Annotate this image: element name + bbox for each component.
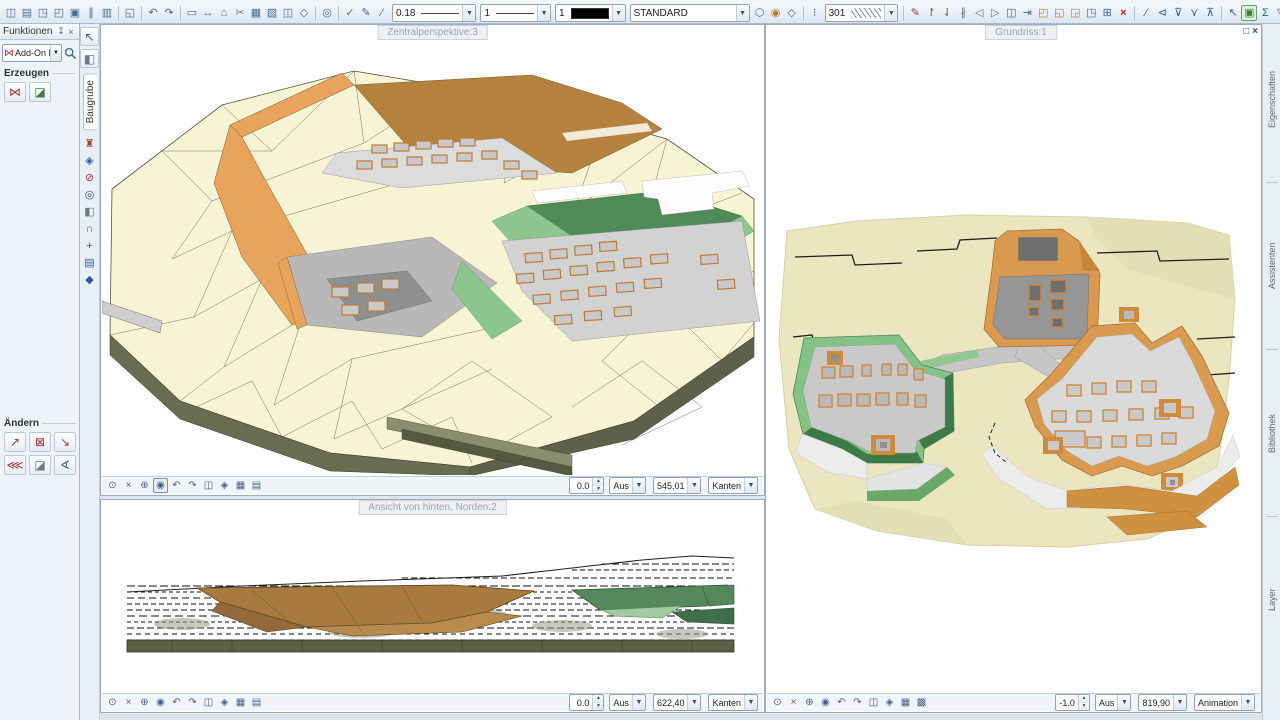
- orbit-view-icon[interactable]: ◉: [153, 695, 168, 710]
- close-window-icon[interactable]: ×: [1252, 26, 1258, 37]
- modify-point-icon[interactable]: ↘: [54, 432, 76, 452]
- addon-module-dropdown[interactable]: ⋈ Add-On Modul ▼: [2, 44, 62, 62]
- fit-view-icon[interactable]: ×: [121, 695, 136, 710]
- select-area-icon[interactable]: ▣: [1241, 5, 1257, 21]
- copy-icon[interactable]: ◫: [1003, 5, 1019, 21]
- filter-back-icon[interactable]: ⋎: [1186, 5, 1202, 21]
- project-pilot-icon[interactable]: ▥: [99, 5, 115, 21]
- perspective-icon[interactable]: ◈: [217, 695, 232, 710]
- library-books-icon[interactable]: ◧: [80, 49, 99, 68]
- functions-palette: Funktionen ↧ × ⋈ Add-On Modul ▼ Erzeugen…: [0, 24, 80, 720]
- viewport-title[interactable]: Ansicht von hinten, Norden:2: [358, 500, 506, 515]
- select-sum-icon[interactable]: Σ: [1257, 5, 1273, 21]
- toolbar-separator: [338, 6, 339, 21]
- tab-baugrube[interactable]: Baugrube: [83, 73, 97, 130]
- inspect-module-icon[interactable]: ◎: [81, 187, 98, 203]
- copy-image-icon[interactable]: ▦: [248, 5, 264, 21]
- perspective-icon[interactable]: ◈: [217, 478, 232, 493]
- select-arrow-icon[interactable]: ↖: [1225, 5, 1241, 21]
- chevron-down-icon[interactable]: ▼: [1117, 695, 1130, 710]
- track-view-icon[interactable]: ⊙: [105, 695, 120, 710]
- copy-mirror-icon[interactable]: ◱: [1051, 5, 1067, 21]
- projection-dropdown[interactable]: Aus▼: [1095, 694, 1132, 711]
- screen-layout-icon[interactable]: ◱: [122, 5, 138, 21]
- furniture-module-icon[interactable]: ♜: [81, 136, 98, 152]
- projection-dropdown[interactable]: Aus▼: [609, 694, 646, 711]
- filter-assistant-icon[interactable]: ⊲: [1154, 5, 1170, 21]
- cut-icon[interactable]: ✂: [232, 5, 248, 21]
- sphere-module-icon[interactable]: ◈: [81, 153, 98, 169]
- dgm-delete-tool-icon[interactable]: ⋈: [4, 82, 26, 102]
- orbit-view-icon[interactable]: ◉: [153, 478, 168, 493]
- toolbar-separator: [1221, 6, 1222, 21]
- viewport-nav-bar: ⊙×⊕◉↶↷◫◈▦▤ 0.0 ▲▼ Aus▼ 622,40▼ Kanten▼: [102, 693, 763, 711]
- view-list-icon[interactable]: ▤: [249, 478, 264, 493]
- view-undo-icon[interactable]: ↶: [834, 695, 849, 710]
- tab-bibliothek[interactable]: Bibliothek: [1267, 358, 1277, 508]
- chevron-down-icon[interactable]: ▼: [744, 478, 757, 493]
- surface-style-icon[interactable]: ⬡: [752, 5, 768, 21]
- scale-dropdown[interactable]: 545,01▼: [653, 477, 702, 494]
- view-redo-icon[interactable]: ↷: [185, 695, 200, 710]
- toolbar-separator: [315, 6, 316, 21]
- view-angle-spinner[interactable]: -1.0 ▲▼: [1055, 694, 1090, 711]
- chevron-down-icon[interactable]: ▼: [884, 5, 897, 21]
- line-type-preview: [496, 13, 534, 14]
- chevron-down-icon[interactable]: ▼: [632, 478, 645, 493]
- module-icon: ⋈: [3, 48, 15, 59]
- save-icon[interactable]: ▣: [67, 5, 83, 21]
- paste-image-icon[interactable]: ▧: [264, 5, 280, 21]
- find-icon[interactable]: ◎: [319, 5, 335, 21]
- view-angle-spinner[interactable]: 0.0 ▲▼: [569, 477, 604, 494]
- format-stroke-icon[interactable]: ∕: [374, 5, 390, 21]
- scale-dropdown[interactable]: 819,90▼: [1138, 694, 1187, 711]
- format-check-icon[interactable]: ✓: [342, 5, 358, 21]
- filter-up-icon[interactable]: ⊼: [1202, 5, 1218, 21]
- hatch-link-icon[interactable]: ⁝: [807, 5, 823, 21]
- resize-icon[interactable]: ⊞: [1099, 5, 1115, 21]
- toolbar-separator: [1134, 6, 1135, 21]
- pin-strip-icon[interactable]: ↖: [80, 27, 99, 46]
- view-undo-icon[interactable]: ↶: [169, 695, 184, 710]
- viewport-perspective: Zentralperspektive:3: [100, 24, 765, 496]
- format-pen-icon[interactable]: ✎: [358, 5, 374, 21]
- print-view-icon[interactable]: ◫: [201, 478, 216, 493]
- elevation-canvas[interactable]: [102, 514, 763, 692]
- orbit-view-icon[interactable]: ◉: [818, 695, 833, 710]
- track-view-icon[interactable]: ⊙: [105, 478, 120, 493]
- modify-line-icon[interactable]: ↗: [4, 432, 26, 452]
- chevron-down-icon[interactable]: ▼: [612, 5, 625, 21]
- chevron-down-icon[interactable]: ▼: [50, 45, 61, 61]
- undo-icon[interactable]: ↶: [145, 5, 161, 21]
- layer-dropdown[interactable]: STANDARD ▼: [630, 4, 750, 22]
- stop-module-icon[interactable]: ⊘: [81, 170, 98, 186]
- fit-view-icon[interactable]: ×: [786, 695, 801, 710]
- viewport-title[interactable]: Zentralperspektive:3: [377, 25, 488, 40]
- redo-icon[interactable]: ↷: [161, 5, 177, 21]
- close-palette-icon[interactable]: ×: [66, 27, 76, 37]
- palette-title-bar: Funktionen ↧ ×: [0, 24, 79, 40]
- toolbar-separator: [180, 6, 181, 21]
- section-create-header: Erzeugen: [4, 68, 75, 79]
- stretch-icon[interactable]: ◲: [1067, 5, 1083, 21]
- view-list-icon[interactable]: ▤: [249, 695, 264, 710]
- strip-divider: [1266, 516, 1278, 517]
- diamond-module-icon[interactable]: ◆: [81, 272, 98, 288]
- hatch-preview: [851, 8, 881, 18]
- spin-down-icon[interactable]: ▼: [1079, 703, 1089, 711]
- pen-color-dropdown[interactable]: 1 ▼: [555, 4, 626, 22]
- zoom-in-icon[interactable]: ⊕: [137, 695, 152, 710]
- dgm-mesh-tool-icon[interactable]: ◪: [29, 82, 51, 102]
- 3d-body-icon[interactable]: ◇: [296, 5, 312, 21]
- print-view-icon[interactable]: ◫: [201, 695, 216, 710]
- axis-module-icon[interactable]: +: [81, 238, 98, 254]
- fit-view-icon[interactable]: ×: [121, 478, 136, 493]
- search-icon[interactable]: [64, 47, 77, 60]
- tab-layer[interactable]: Layer: [1267, 525, 1277, 675]
- texture-icon[interactable]: ◇: [784, 5, 800, 21]
- mesh-settings-icon[interactable]: ∢: [54, 455, 76, 475]
- toolbar-separator: [803, 6, 804, 21]
- copy-view-icon[interactable]: ▦: [233, 695, 248, 710]
- allplan-cad-window: { "toolbar": { "pen_width": "0.18", "lin…: [0, 0, 1280, 720]
- clip-module-icon[interactable]: ◧: [81, 204, 98, 220]
- display-mode-dropdown[interactable]: Animation▼: [1194, 694, 1255, 711]
- merge-mesh-icon[interactable]: ⋘: [4, 455, 26, 475]
- chevron-down-icon[interactable]: ▼: [632, 695, 645, 710]
- hook-tool-icon[interactable]: ⇃: [939, 5, 955, 21]
- chevron-down-icon[interactable]: ▼: [687, 695, 700, 710]
- display-mode-dropdown[interactable]: Kanten▼: [708, 477, 758, 494]
- track-view-icon[interactable]: ⊙: [770, 695, 785, 710]
- roof-tool-icon[interactable]: ⌂: [216, 5, 232, 21]
- zoom-in-icon[interactable]: ⊕: [137, 478, 152, 493]
- section-modify-header: Ändern: [4, 418, 76, 429]
- spin-up-icon[interactable]: ▲: [1079, 695, 1089, 703]
- filter-pen-icon[interactable]: ∕: [1138, 5, 1154, 21]
- copy-view-icon[interactable]: ▦: [233, 478, 248, 493]
- palette-title: Funktionen: [3, 26, 52, 37]
- select-filter-icon[interactable]: ▽: [1273, 5, 1280, 21]
- display-mode-dropdown[interactable]: Kanten▼: [708, 694, 758, 711]
- toolbar-separator: [118, 6, 119, 21]
- delete-mesh-icon[interactable]: ⊠: [29, 432, 51, 452]
- viewport-nav-bar: ⊙×⊕◉↶↷◫◈▦▤ 0.0 ▲▼ Aus▼ 545,01▼ Kanten▼: [102, 476, 763, 494]
- viewport-nav-bar: ⊙×⊕◉↶↷◫◈▦▩ -1.0 ▲▼ Aus▼ 819,90▼ Animatio…: [767, 693, 1260, 711]
- spin-up-icon[interactable]: ▲: [593, 478, 603, 486]
- chevron-down-icon[interactable]: ▼: [537, 5, 550, 21]
- hatch-style-dropdown[interactable]: 301 ▼: [825, 4, 899, 22]
- smooth-mesh-icon[interactable]: ◪: [29, 455, 51, 475]
- parallel-icon[interactable]: ∦: [955, 5, 971, 21]
- view-angle-spinner[interactable]: 0.0 ▲▼: [569, 694, 604, 711]
- viewport-title[interactable]: Grundriss:1: [985, 25, 1057, 40]
- view-redo-icon[interactable]: ↷: [185, 478, 200, 493]
- import-export-icon[interactable]: ∥: [83, 5, 99, 21]
- pen-width-preview: [421, 13, 459, 14]
- grid-view-icon[interactable]: ▩: [914, 695, 929, 710]
- ruler-icon[interactable]: ▭: [184, 5, 200, 21]
- tab-assistenten[interactable]: Assistenten: [1267, 191, 1277, 341]
- pin-palette-icon[interactable]: ↧: [56, 26, 66, 37]
- new-document-icon[interactable]: ◫: [3, 5, 19, 21]
- toolbar-separator: [141, 6, 142, 21]
- color-swatch: [571, 8, 609, 19]
- print-view-icon[interactable]: ◫: [866, 695, 881, 710]
- chevron-down-icon[interactable]: ▼: [744, 695, 757, 710]
- mirror-left-icon[interactable]: ◁: [971, 5, 987, 21]
- paste-special-icon[interactable]: ◫: [280, 5, 296, 21]
- mirror-right-icon[interactable]: ▷: [987, 5, 1003, 21]
- align-icon[interactable]: ◳: [1083, 5, 1099, 21]
- maximize-window-icon[interactable]: □: [1243, 26, 1249, 37]
- viewport-elevation: Ansicht von hinten, Norden:2: [100, 499, 765, 713]
- scale-dropdown[interactable]: 622,40▼: [653, 694, 702, 711]
- chevron-down-icon[interactable]: ▼: [687, 478, 700, 493]
- chevron-down-icon[interactable]: ▼: [1241, 695, 1254, 710]
- measure-tape-icon[interactable]: ↔: [200, 5, 216, 21]
- view-undo-icon[interactable]: ↶: [169, 478, 184, 493]
- open-folder-icon[interactable]: ◰: [51, 5, 67, 21]
- edit-pen-icon[interactable]: ✎: [907, 5, 923, 21]
- strip-divider: [1266, 349, 1278, 350]
- tab-eigenschaften[interactable]: Eigenschaften: [1267, 24, 1277, 174]
- spin-down-icon[interactable]: ▼: [593, 486, 603, 494]
- viewport-plan: Grundriss:1 □ ×: [765, 24, 1262, 713]
- list-module-icon[interactable]: ▤: [81, 255, 98, 271]
- toolbar-separator: [903, 6, 904, 21]
- chevron-down-icon[interactable]: ▼: [462, 5, 475, 21]
- view-redo-icon[interactable]: ↷: [850, 695, 865, 710]
- plan-canvas[interactable]: [767, 39, 1260, 692]
- pin-tool-icon[interactable]: ↾: [923, 5, 939, 21]
- chevron-down-icon[interactable]: ▼: [736, 5, 749, 21]
- projection-dropdown[interactable]: Aus▼: [609, 477, 646, 494]
- copy-view-icon[interactable]: ▦: [898, 695, 913, 710]
- copy-document-icon[interactable]: ◳: [35, 5, 51, 21]
- move-icon[interactable]: ⇥: [1019, 5, 1035, 21]
- magnet-module-icon[interactable]: ∩: [81, 221, 98, 237]
- strip-divider: [1266, 182, 1278, 183]
- spin-down-icon[interactable]: ▼: [593, 703, 603, 711]
- zoom-in-icon[interactable]: ⊕: [802, 695, 817, 710]
- open-project-icon[interactable]: ▤: [19, 5, 35, 21]
- filter-down-icon[interactable]: ⊽: [1170, 5, 1186, 21]
- light-icon[interactable]: ◉: [768, 5, 784, 21]
- rotate-icon[interactable]: ◰: [1035, 5, 1051, 21]
- perspective-canvas[interactable]: [102, 39, 763, 475]
- main-toolbar: ◫▤◳◰▣∥▥ ◱ ↶↷ ▭↔⌂✂▦▧◫◇ ◎ ✓✎∕ 0.18 ▼ 1 ▼ 1…: [0, 3, 1280, 24]
- perspective-icon[interactable]: ◈: [882, 695, 897, 710]
- module-strip: ↖◧ Baugrube ♜◈⊘◎◧∩+▤◆: [80, 24, 100, 720]
- spin-up-icon[interactable]: ▲: [593, 695, 603, 703]
- right-palette-strip: Eigenschaften Assistenten Bibliothek Lay…: [1262, 24, 1280, 720]
- line-type-dropdown[interactable]: 1 ▼: [480, 4, 551, 22]
- chevron-down-icon[interactable]: ▼: [1173, 695, 1186, 710]
- delete-icon[interactable]: ×: [1115, 5, 1131, 21]
- pen-width-dropdown[interactable]: 0.18 ▼: [392, 4, 476, 22]
